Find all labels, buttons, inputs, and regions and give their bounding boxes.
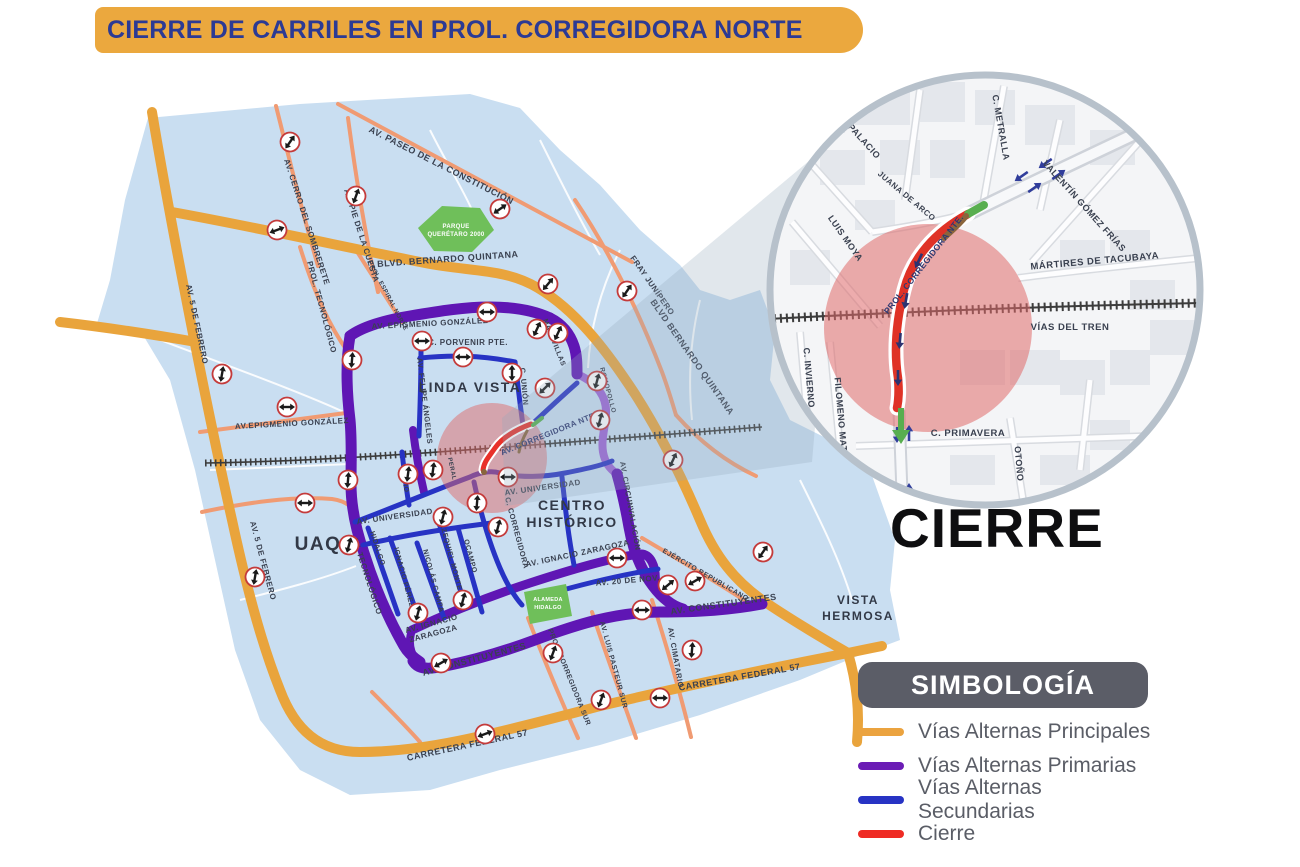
district-label: HISTÓRICO [526,513,617,530]
park-label: PARQUE [442,224,469,230]
two-way-arrow-badge [467,493,488,514]
red-line-swatch [858,830,904,838]
park-label: QUERÉTARO 2000 [427,230,484,238]
district-label: VISTA [837,593,879,607]
legend-header: SIMBOLOGÍA [858,662,1148,708]
legend-item-label: Vías Alternas Primarias [918,754,1136,778]
two-way-arrow-badge [608,549,627,568]
legend-item-primarias: Vías Alternas Primarias [858,755,1158,776]
two-way-arrow-badge [413,332,432,351]
legend-title: SIMBOLOGÍA [911,670,1095,701]
orange-line-swatch [858,728,904,736]
two-way-arrow-badge [633,601,652,620]
legend-item-principales: Vías Alternas Principales [858,721,1158,742]
district-label: HERMOSA [822,609,894,623]
legend: SIMBOLOGÍA Vías Alternas Principales Vía… [858,662,1158,844]
district-label: UAQ [295,534,342,555]
two-way-arrow-badge [682,640,703,661]
inset-road-label: VÍAS DEL TREN [1031,322,1110,333]
purple-line-swatch [858,762,904,770]
two-way-arrow-badge [454,348,473,367]
two-way-arrow-badge [342,350,363,371]
legend-item-cierre: Cierre [858,823,1158,844]
legend-item-secundarias: Vías Alternas Secundarias [858,789,1158,810]
legend-item-label: Cierre [918,822,975,846]
two-way-arrow-badge [478,303,497,322]
road-label: C. PORVENIR PTE. [428,338,508,347]
inset-road-label: C. PRIMAVERA [931,428,1005,439]
park-label: HIDALGO [534,605,562,611]
page-title: CIERRE DE CARRILES EN PROL. CORREGIDORA … [107,16,803,45]
blue-line-swatch [858,796,904,804]
two-way-arrow-badge [338,470,359,491]
legend-item-label: Vías Alternas Principales [918,720,1150,744]
two-way-arrow-badge [651,689,670,708]
legend-item-label: Vías Alternas Secundarias [918,776,1158,824]
inset-caption: CIERRE [890,496,1100,560]
park-label: ALAMEDA [533,597,563,603]
two-way-arrow-badge [278,398,297,417]
two-way-arrow-badge [296,494,315,513]
title-banner: CIERRE DE CARRILES EN PROL. CORREGIDORA … [95,7,863,53]
two-way-arrow-badge [503,364,522,383]
